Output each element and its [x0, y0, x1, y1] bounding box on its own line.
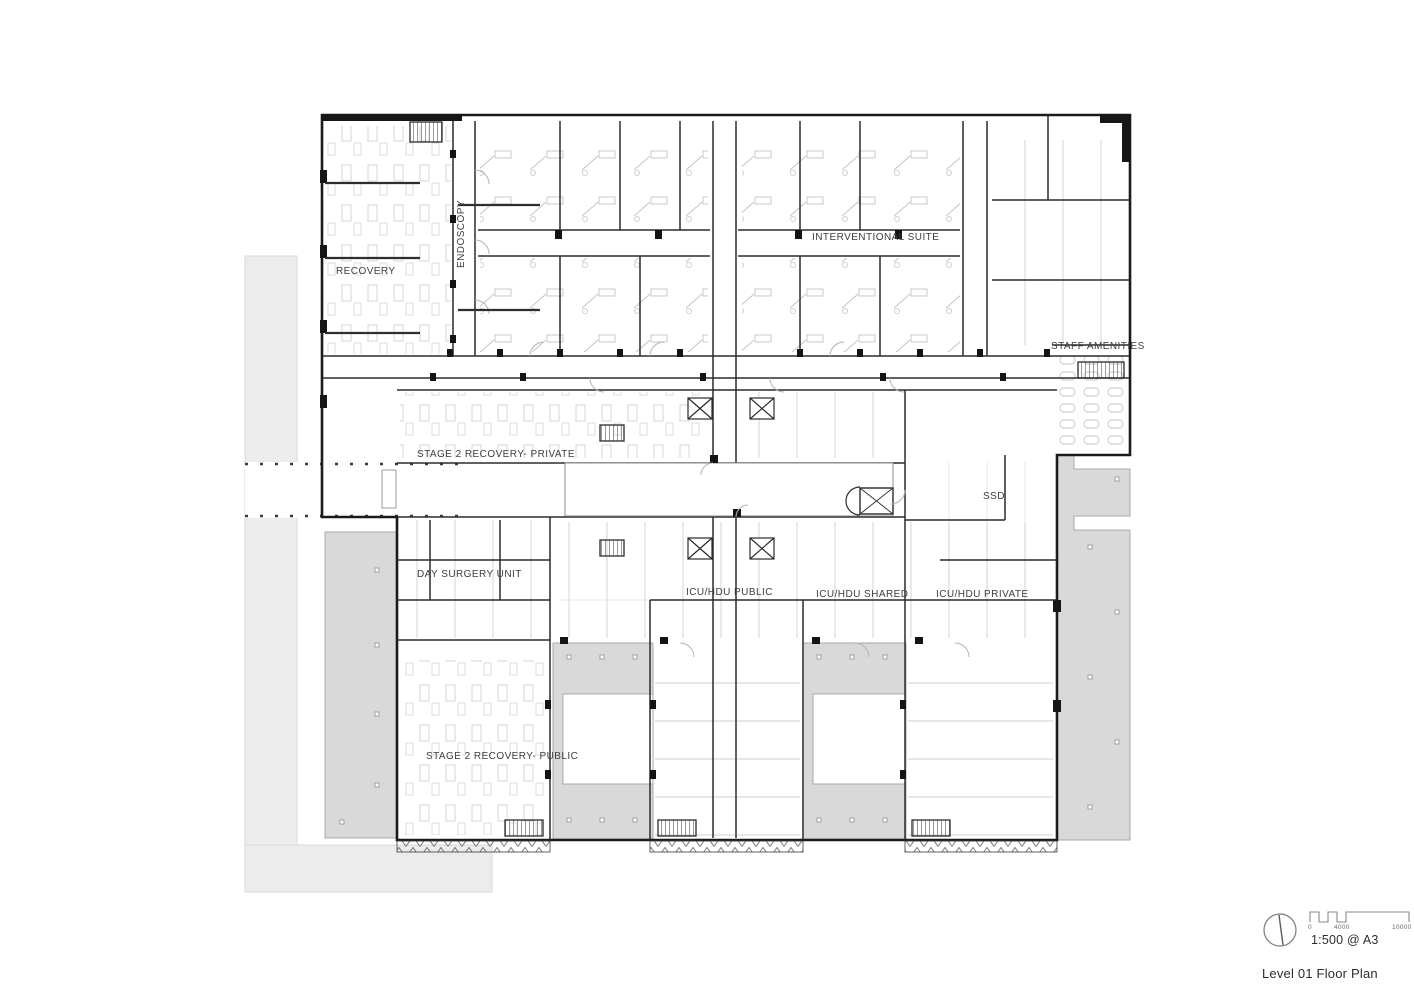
room-label-day-surgery: DAY SURGERY UNIT: [417, 569, 522, 580]
site-strip-west: [245, 256, 297, 845]
lift-box: [750, 538, 774, 559]
room-label-icu-public: ICU/HDU PUBLIC: [686, 587, 773, 598]
room-label-staff-amenities: STAFF AMENITIES: [1051, 341, 1145, 352]
walkway: [245, 462, 460, 518]
scale-tick-10000: 10000: [1392, 924, 1412, 931]
drawing-title: Level 01 Floor Plan: [1262, 966, 1378, 981]
lift-box: [688, 538, 712, 559]
lift-box: [750, 398, 774, 419]
scale-text: 1:500 @ A3: [1311, 933, 1379, 947]
scale-bar-icon: [1310, 912, 1409, 922]
room-label-stage2-private: STAGE 2 RECOVERY- PRIVATE: [417, 449, 575, 460]
terrace-east: [1057, 455, 1130, 840]
scale-tick-4000: 4000: [1334, 924, 1350, 931]
courtyard-west: [325, 532, 397, 838]
floor-plan-sheet: RECOVERY ENDOSCOPY INTERVENTIONAL SUITE …: [0, 0, 1414, 1000]
room-label-icu-shared: ICU/HDU SHARED: [816, 589, 908, 600]
room-label-endoscopy: ENDOSCOPY: [456, 200, 467, 268]
atrium: [565, 463, 893, 516]
entry-canopies: [397, 841, 1057, 852]
scale-tick-0: 0: [1308, 924, 1312, 931]
room-label-recovery: RECOVERY: [336, 266, 396, 277]
room-label-stage2-public: STAGE 2 RECOVERY- PUBLIC: [426, 751, 578, 762]
room-label-ssd: SSD: [983, 491, 1005, 502]
room-label-icu-private: ICU/HDU PRIVATE: [936, 589, 1029, 600]
room-label-interventional-suite: INTERVENTIONAL SUITE: [812, 232, 939, 243]
floor-plan-drawing: [0, 0, 1414, 1000]
lift-box: [688, 398, 712, 419]
